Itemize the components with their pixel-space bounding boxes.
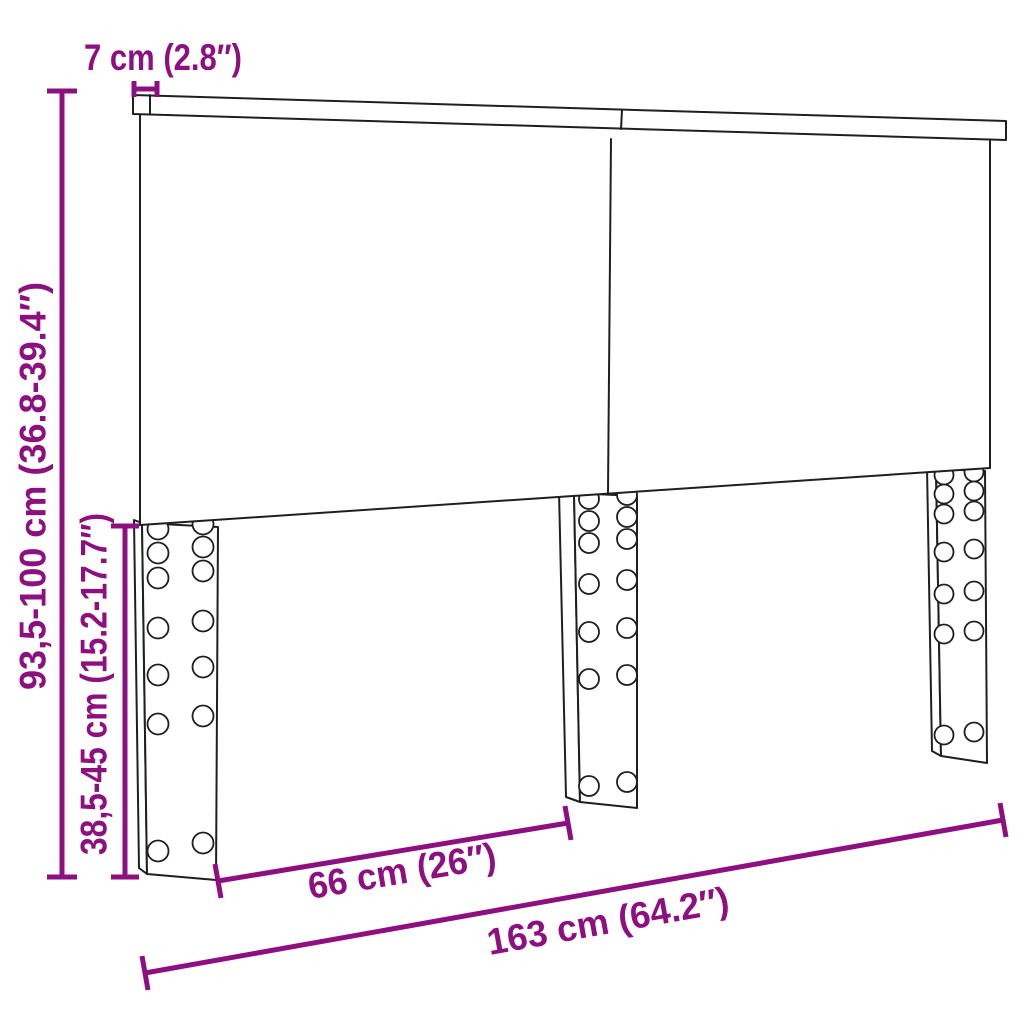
screw-hole [617,507,637,527]
screw-hole [965,723,984,742]
screw-hole [148,714,169,735]
screw-hole [193,561,214,582]
screw-hole [193,537,214,558]
leg-height-label: 38,5-45 cm (15.2-17.7″) [74,513,115,855]
screw-hole [617,618,637,638]
top-board-center-seam [621,110,622,129]
leg-spacing-label: 66 cm (26″) [305,835,499,907]
screw-hole [193,833,214,854]
screw-hole [579,669,599,689]
dimension-tick [142,956,148,990]
screw-hole [617,529,637,549]
screw-hole [148,568,169,589]
screw-hole [148,665,169,686]
dimension-tick [1000,803,1006,837]
screw-hole [193,657,214,678]
screw-hole [935,505,954,524]
screw-hole [579,574,599,594]
overall-height-label: 93,5-100 cm (36.8-39.4″) [13,282,54,690]
screw-hole [935,543,954,562]
screw-hole [148,841,169,862]
headboard-leg-left [134,514,218,881]
dimension-tick [215,864,221,898]
screw-hole [579,533,599,553]
headboard-panel [140,112,990,525]
screw-hole [965,540,984,559]
screw-hole [148,543,169,564]
screw-hole [148,618,169,639]
screw-hole [965,582,984,601]
headboard-drawing [133,95,1006,880]
screw-hole [193,706,214,727]
screw-hole [935,585,954,604]
top-thickness-label: 7 cm (2.8″) [84,37,242,78]
screw-hole [965,502,984,521]
dimension-tick [565,806,571,840]
dimension-line [145,820,1003,973]
headboard-leg-right [927,463,987,764]
screw-hole [617,665,637,685]
screw-hole [935,485,954,504]
screw-hole [617,570,637,590]
headboard-dimension-diagram: 7 cm (2.8″) 93,5-100 cm (36.8-39.4″) 38,… [0,0,1024,1024]
dimension-overall-width [142,803,1006,990]
screw-hole [965,622,984,641]
screw-hole [617,772,637,792]
screw-hole [193,611,214,632]
screw-hole [579,776,599,796]
headboard-leg-middle [559,485,637,808]
screw-hole [579,511,599,531]
screw-hole [935,726,954,745]
screw-hole [579,622,599,642]
diagram-canvas: 7 cm (2.8″) 93,5-100 cm (36.8-39.4″) 38,… [0,0,1024,1024]
screw-hole [965,482,984,501]
screw-hole [935,625,954,644]
